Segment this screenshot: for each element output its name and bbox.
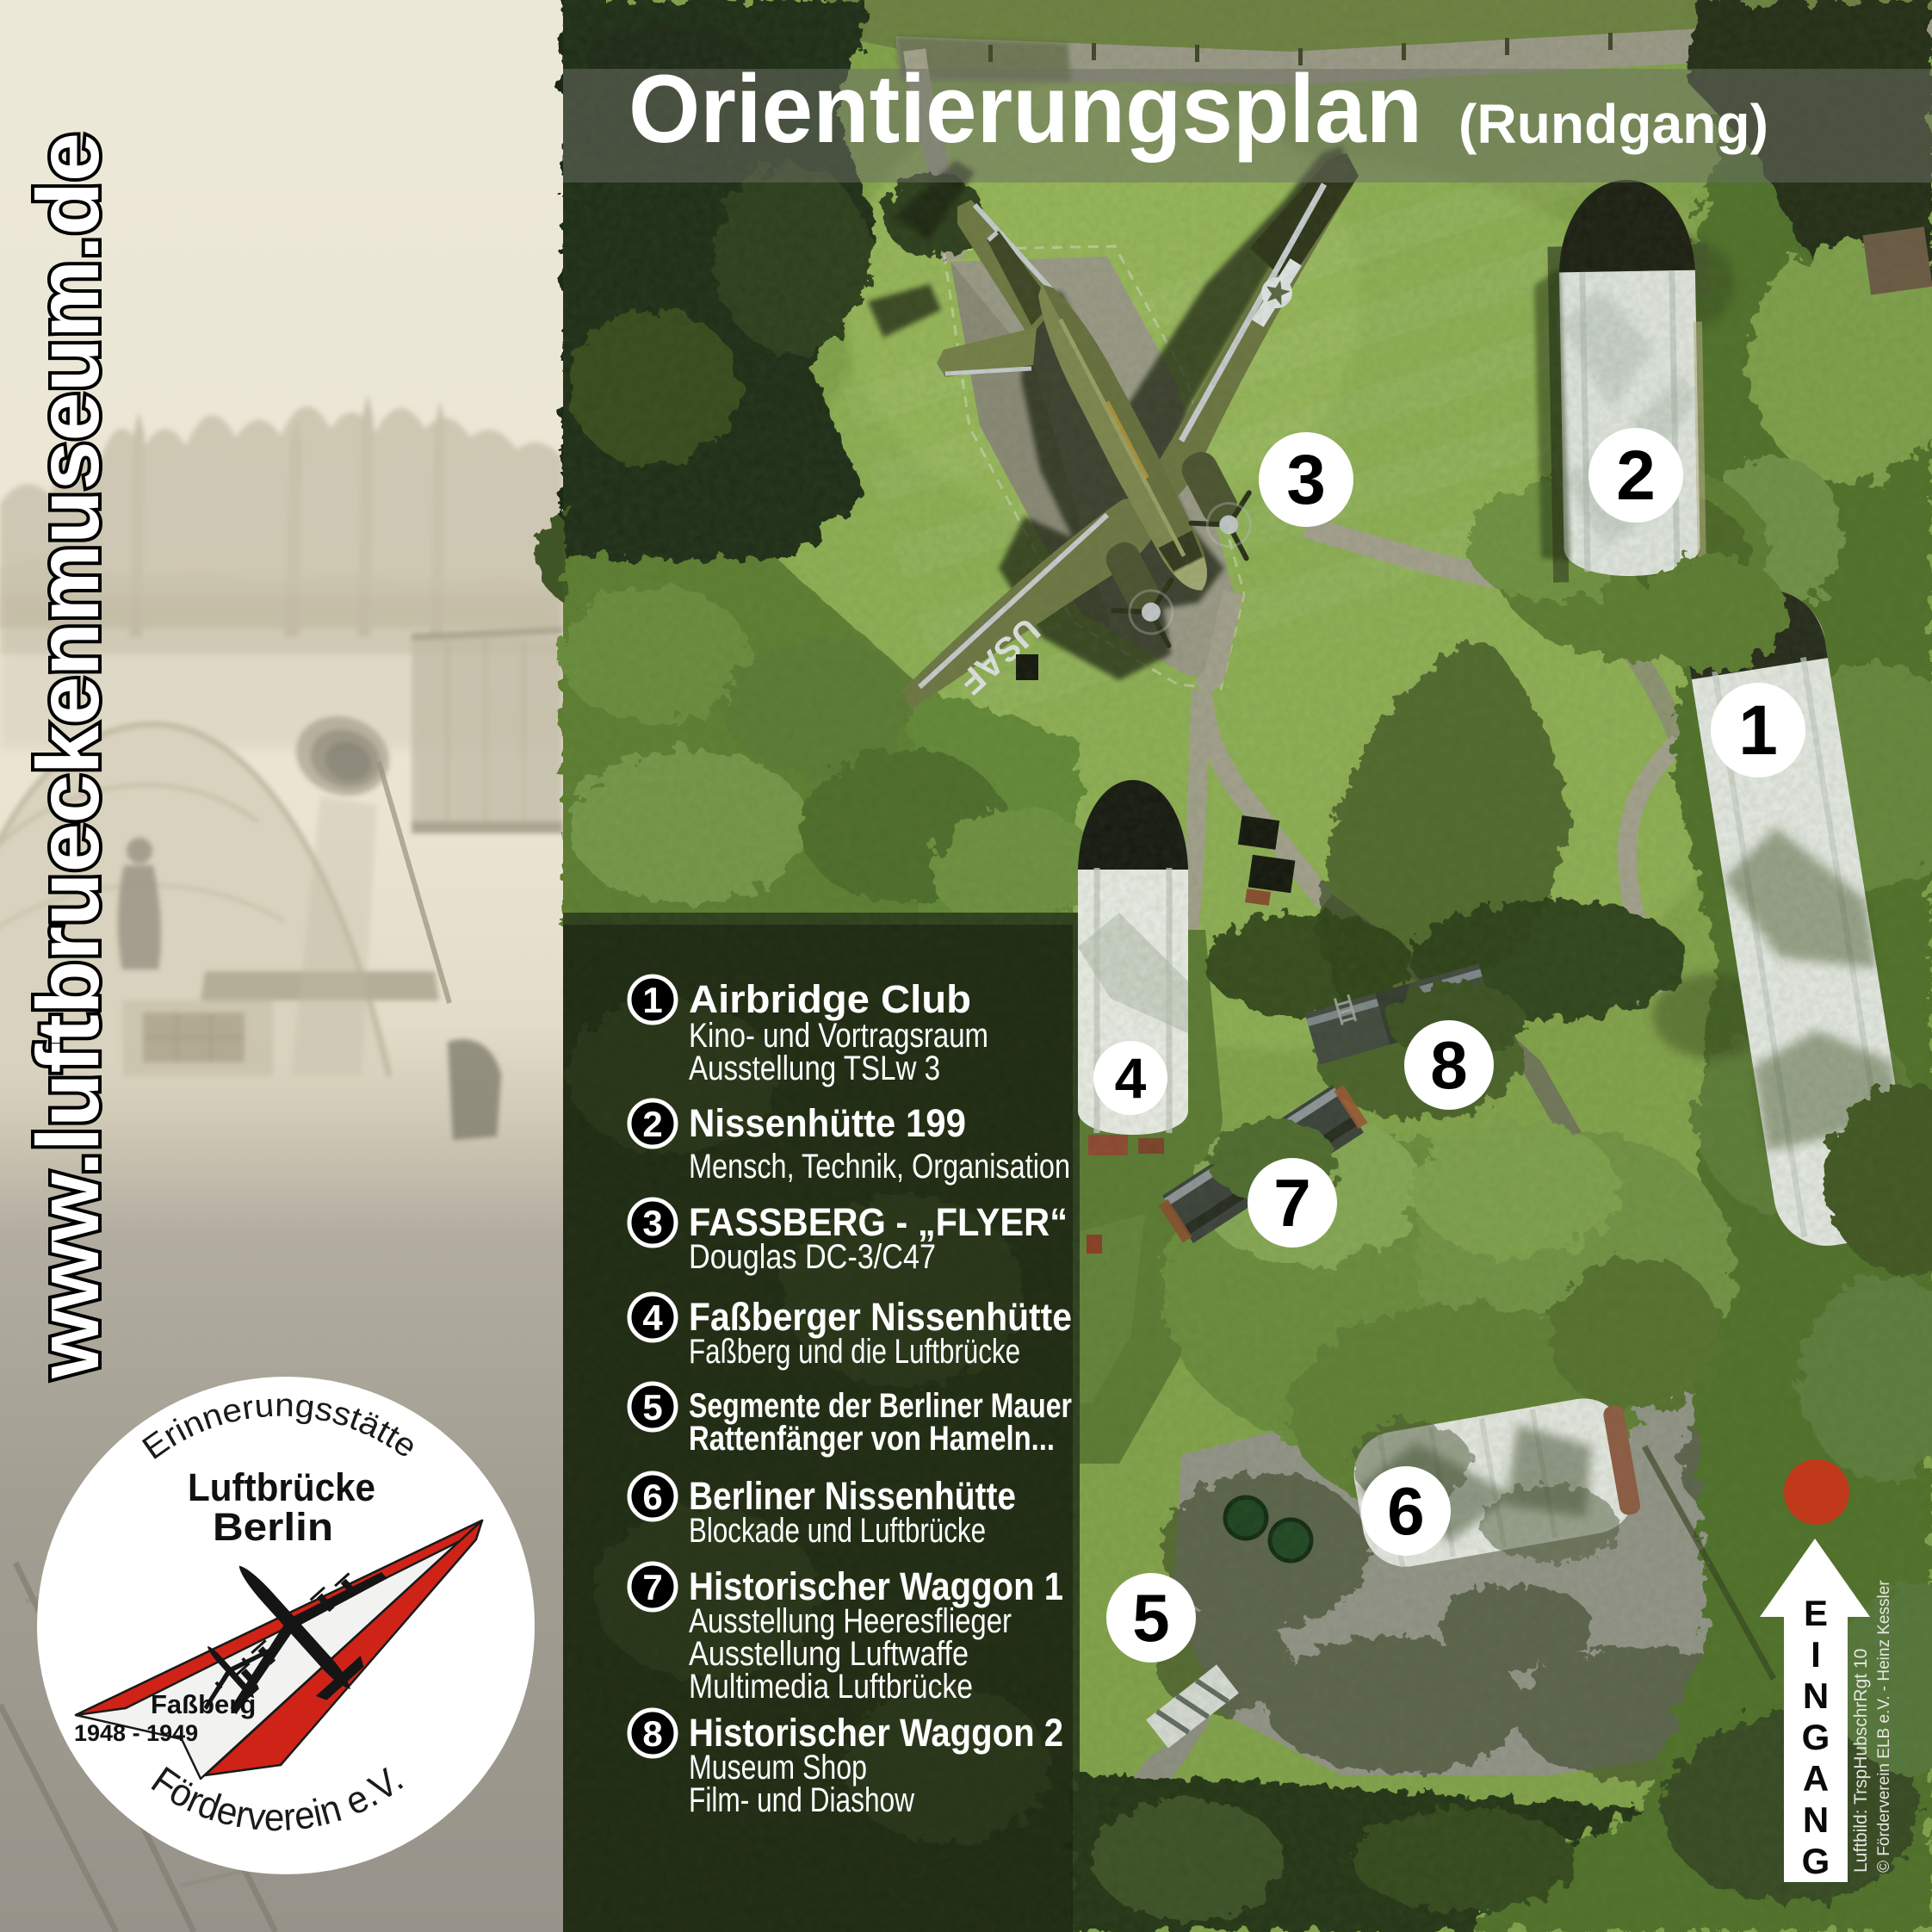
svg-text:3: 3: [1286, 441, 1326, 519]
svg-text:Rattenfänger von Hameln...: Rattenfänger von Hameln...: [689, 1420, 1055, 1458]
svg-text:N: N: [1803, 1675, 1829, 1716]
svg-text:1: 1: [1738, 691, 1778, 770]
svg-text:Film- und Diashow: Film- und Diashow: [689, 1781, 914, 1819]
svg-text:Mensch, Technik, Organisation: Mensch, Technik, Organisation: [689, 1148, 1070, 1186]
svg-text:A: A: [1803, 1758, 1829, 1799]
svg-text:8: 8: [642, 1713, 662, 1754]
svg-text:Douglas DC-3/C47: Douglas DC-3/C47: [689, 1238, 936, 1276]
svg-text:Luftbild: TrspHubschrRgt 10: Luftbild: TrspHubschrRgt 10: [1851, 1649, 1871, 1873]
svg-text:Faßberg und die Luftbrücke: Faßberg und die Luftbrücke: [689, 1333, 1020, 1371]
svg-text:5: 5: [1132, 1580, 1169, 1656]
svg-text:8: 8: [1430, 1027, 1467, 1103]
svg-text:4: 4: [642, 1297, 663, 1338]
svg-text:Nissenhütte 199: Nissenhütte 199: [689, 1101, 966, 1145]
svg-text:Blockade und Luftbrücke: Blockade und Luftbrücke: [689, 1512, 986, 1550]
svg-text:G: G: [1802, 1841, 1830, 1881]
svg-text:2: 2: [642, 1104, 662, 1144]
svg-text:N: N: [1803, 1799, 1829, 1840]
svg-text:1: 1: [642, 980, 662, 1020]
svg-text:2: 2: [1616, 437, 1656, 515]
svg-text:3: 3: [642, 1203, 662, 1243]
svg-text:G: G: [1802, 1717, 1830, 1757]
svg-text:1948 - 1949: 1948 - 1949: [74, 1720, 198, 1746]
svg-text:4: 4: [1115, 1046, 1147, 1110]
svg-text:6: 6: [642, 1477, 662, 1517]
svg-text:5: 5: [642, 1387, 662, 1427]
svg-text:Airbridge Club: Airbridge Club: [689, 977, 971, 1021]
svg-text:Faßberg: Faßberg: [151, 1689, 256, 1719]
svg-text:(Rundgang): (Rundgang): [1458, 93, 1768, 155]
svg-text:I: I: [1811, 1634, 1821, 1675]
svg-text:7: 7: [1273, 1165, 1310, 1241]
svg-text:Luftbrücke: Luftbrücke: [188, 1465, 375, 1509]
svg-text:Multimedia Luftbrücke: Multimedia Luftbrücke: [689, 1668, 973, 1706]
svg-text:6: 6: [1387, 1473, 1424, 1549]
svg-text:Berlin: Berlin: [213, 1505, 333, 1549]
svg-text:E: E: [1804, 1593, 1828, 1633]
svg-text:www.luftbrueckenmuseum.de: www.luftbrueckenmuseum.de: [19, 133, 117, 1379]
svg-text:Orientierungsplan: Orientierungsplan: [629, 55, 1422, 163]
svg-text:© Förderverein ELB e.V. - Hein: © Förderverein ELB e.V. - Heinz Kessler: [1875, 1580, 1893, 1873]
svg-text:Ausstellung TSLw 3: Ausstellung TSLw 3: [689, 1050, 940, 1087]
svg-text:7: 7: [642, 1567, 662, 1607]
